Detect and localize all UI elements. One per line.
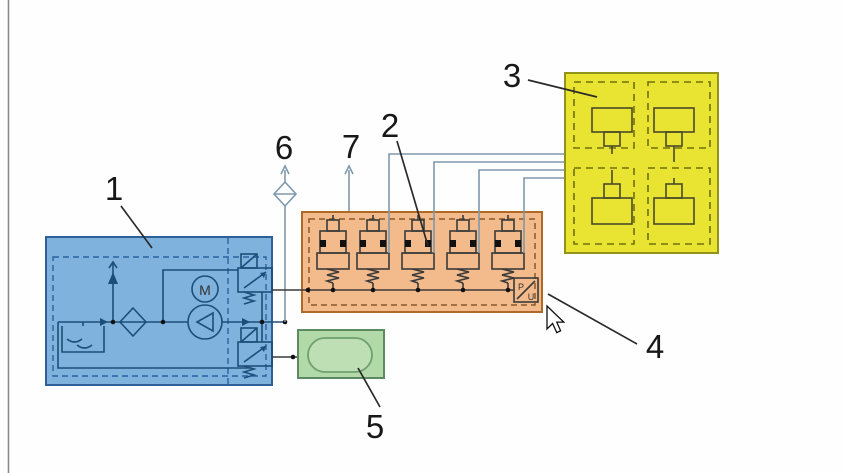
junction-dot: [161, 320, 166, 325]
callout-2: 2: [381, 107, 399, 144]
accumulator-block: [272, 330, 384, 378]
junction-dot: [260, 320, 265, 325]
schematic-page: M: [0, 0, 844, 473]
junction-dot: [111, 320, 116, 325]
callout-5: 5: [366, 408, 384, 445]
accumulator-icon: [308, 338, 372, 372]
transducer-letter-u: U: [528, 292, 535, 302]
motor-letter: M: [199, 282, 211, 298]
mouse-cursor: [547, 306, 564, 333]
actuator-block-body: [565, 73, 718, 253]
callout-1: 1: [105, 170, 123, 207]
callout-6: 6: [275, 129, 293, 166]
breather-filter-line: [274, 166, 296, 322]
junction-dot: [291, 355, 296, 360]
valve-manifold-block: P U: [272, 212, 542, 312]
callout-7: 7: [342, 128, 360, 165]
callout-3: 3: [503, 57, 521, 94]
callout-4: 4: [646, 328, 664, 365]
power-unit-block: M: [46, 237, 287, 385]
junction-dot: [306, 288, 311, 293]
actuator-block: [565, 73, 718, 253]
transducer-letter-p: P: [518, 282, 524, 292]
hydraulic-schematic: M: [0, 0, 844, 473]
